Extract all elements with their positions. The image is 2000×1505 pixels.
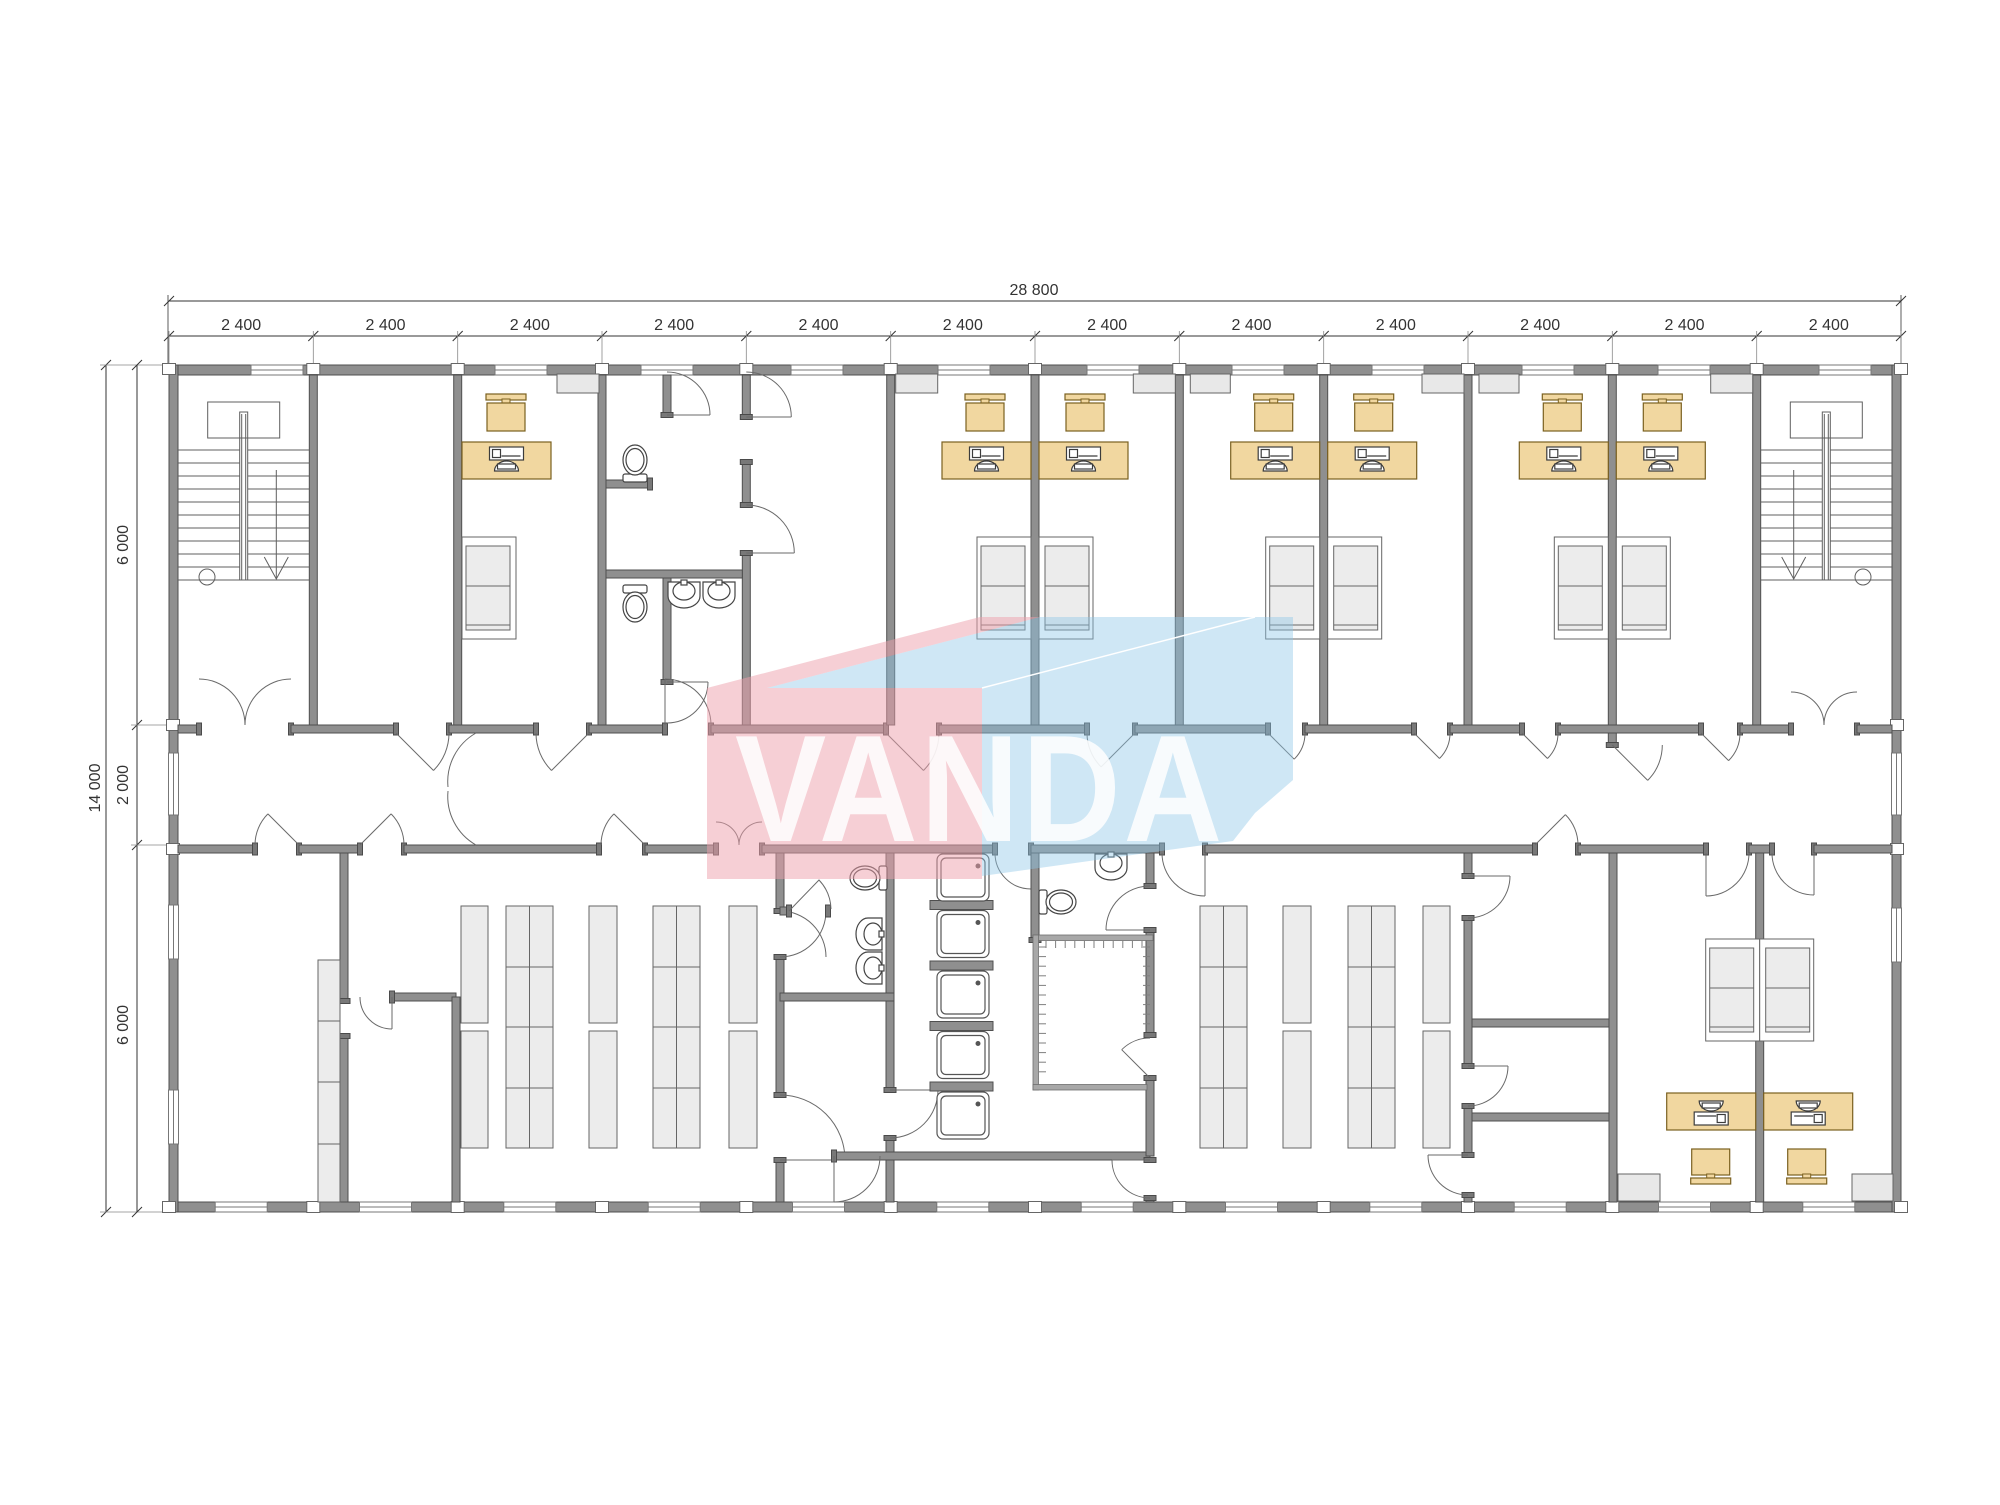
svg-text:2 400: 2 400 [1664,317,1704,334]
svg-text:6 000: 6 000 [115,1005,132,1045]
svg-text:2 400: 2 400 [1520,317,1560,334]
svg-text:2 400: 2 400 [365,317,405,334]
svg-text:2 400: 2 400 [1231,317,1271,334]
svg-text:6 000: 6 000 [115,525,132,565]
svg-text:VANDA: VANDA [735,704,1225,874]
svg-text:2 400: 2 400 [654,317,694,334]
svg-text:2 400: 2 400 [943,317,983,334]
svg-text:2 000: 2 000 [115,765,132,805]
svg-text:2 400: 2 400 [798,317,838,334]
svg-text:2 400: 2 400 [1376,317,1416,334]
svg-text:2 400: 2 400 [1087,317,1127,334]
svg-text:2 400: 2 400 [510,317,550,334]
svg-text:2 400: 2 400 [1809,317,1849,334]
svg-text:14 000: 14 000 [87,763,104,812]
svg-text:2 400: 2 400 [221,317,261,334]
svg-text:28 800: 28 800 [1010,282,1059,299]
